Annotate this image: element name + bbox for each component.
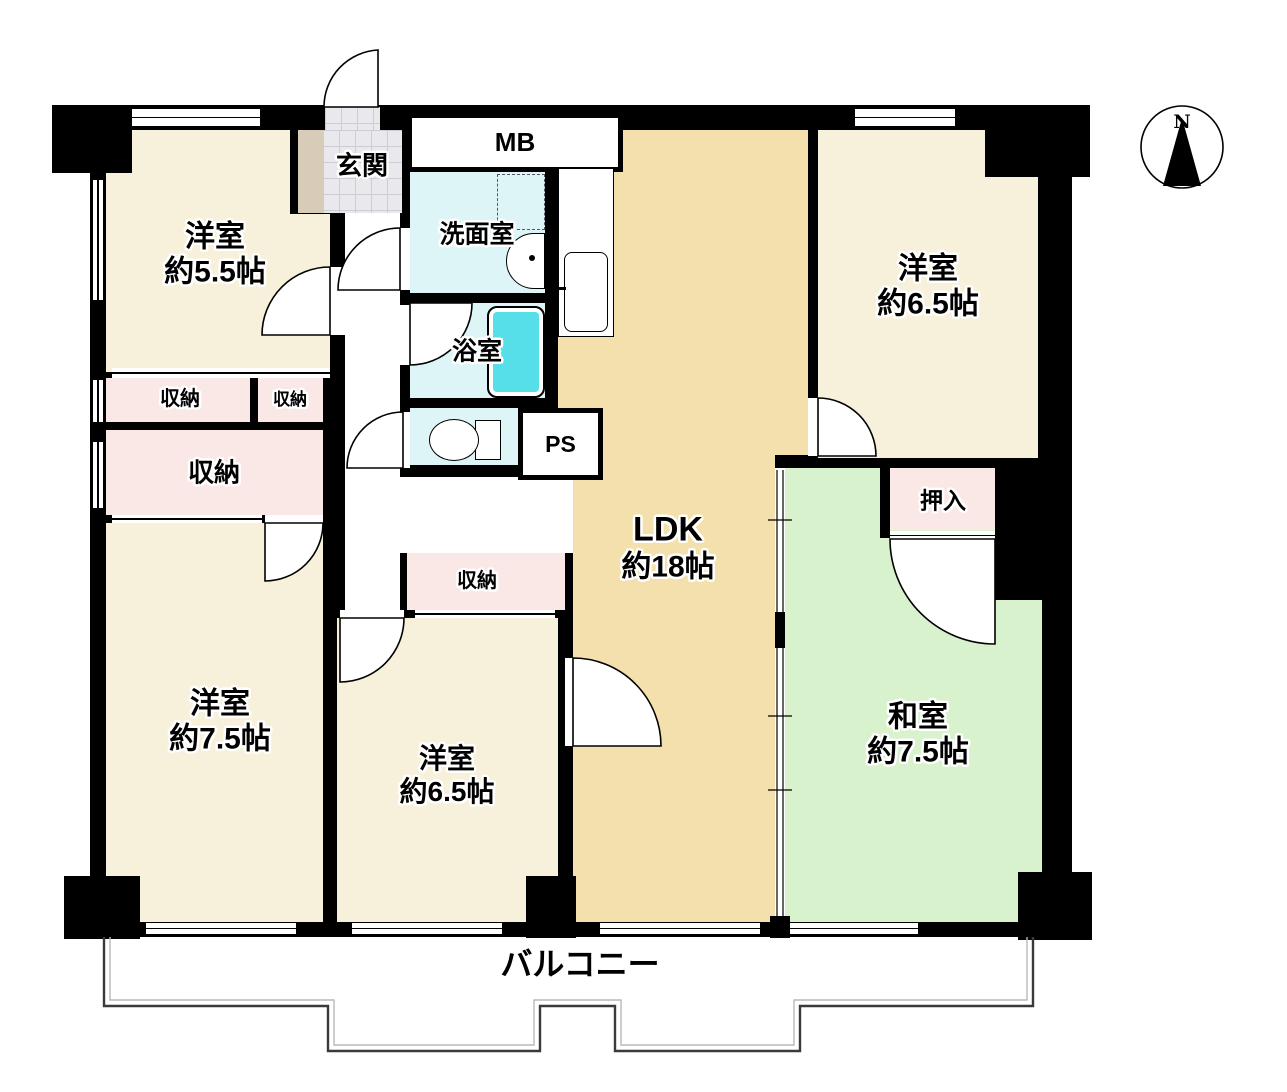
label-washitsu: 和室 約7.5帖 [867,700,969,771]
oshiire-side-wall [880,468,890,538]
hallway-stub [400,477,573,553]
window-left-nw [93,180,103,300]
pillar-mid-right [995,460,1072,600]
label-senmen: 洗面室 [439,220,514,250]
pipe-space-label: PS [545,431,576,458]
pillar-track-foot [770,916,790,938]
label-bedroom-ne: 洋室 約6.5帖 [877,252,979,323]
opening-toilet [400,412,410,468]
opening-bedroom-ne [808,398,818,456]
label-bedroom-sw: 洋室 約7.5帖 [169,687,271,758]
hallway-corridor [345,213,400,618]
window-bottom-s [352,923,502,934]
label-genkan: 玄関 [336,151,388,182]
meter-box-label: MB [495,127,535,158]
label-bedroom-s: 洋室 約6.5帖 [400,742,495,808]
window-bottom-ldk [600,923,760,934]
meter-box: MB [407,113,623,172]
washitsu-sliding-track [775,468,785,922]
label-ldk: LDK 約18帖 [621,509,714,585]
label-bedroom-nw: 洋室 約5.5帖 [164,220,266,291]
window-top-nw [126,109,260,126]
genkan-door-opening [325,107,380,130]
opening-bedroom-sw [265,515,323,523]
label-oshiire: 押入 [920,487,966,514]
pillar-bottom-left [64,876,140,939]
label-closet-1: 収納 [160,388,200,412]
sliding-door-closet-big [112,515,262,523]
pillar-top-right [985,105,1090,177]
sliding-door-oshiire [890,531,995,540]
sliding-door-closet-row [112,368,330,378]
opening-ldk-bedroom-s [565,658,573,746]
label-closet-mid: 収納 [457,570,497,594]
label-closet-big: 収納 [188,458,240,489]
shoe-cabinet [298,130,323,213]
window-left-closetbig [93,442,103,508]
svg-text:N: N [1173,111,1190,133]
label-closet-2: 収納 [273,390,307,410]
floorplan-page: { "floorplan": { "title": "apartment-flo… [0,0,1287,1092]
room-ldk-top [613,130,808,455]
pillar-top-left [52,105,132,173]
door-genkan [324,50,378,107]
label-bath: 浴室 [452,337,502,367]
room-ldk-center [600,408,775,468]
sliding-door-closet-mid [415,610,555,618]
pillar-bottom-mid [526,876,576,938]
label-balcony: バルコニー [500,946,659,984]
toilet-bowl-icon [429,419,479,461]
kitchen-sink-icon [564,252,608,332]
opening-bath [400,305,410,365]
pillar-bottom-right [1018,872,1092,940]
window-left-closet1 [93,380,103,422]
window-bottom-washitsu [790,923,918,934]
pipe-space: PS [518,408,603,480]
compass-north-icon: N [1141,106,1223,188]
opening-bedroom-s-hall [340,610,404,618]
opening-senmen [400,228,410,290]
window-bottom-sw [146,923,296,934]
window-top-ne [855,109,955,126]
opening-bedroom-nw [330,267,345,335]
